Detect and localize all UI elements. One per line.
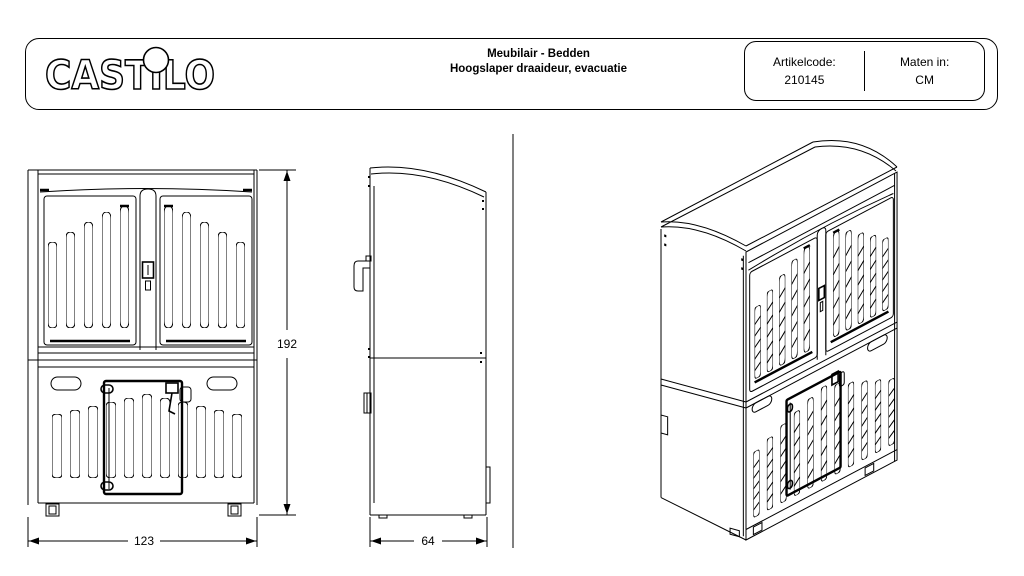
arrow-down-icon [284, 504, 291, 514]
slat [861, 380, 867, 461]
height-dim-label: 192 [277, 337, 297, 351]
slat [236, 242, 245, 328]
slat [200, 222, 209, 328]
slat [845, 229, 851, 331]
iso-side-latch [661, 415, 668, 435]
isometric-view [661, 140, 897, 540]
arrow-right-icon [476, 538, 486, 545]
slat [106, 402, 116, 478]
slat [753, 449, 759, 518]
door-lock-keyhole [146, 281, 151, 290]
front-rail-marks [40, 190, 252, 341]
slat [88, 406, 98, 478]
slat [164, 206, 173, 328]
upper-door-left [44, 196, 136, 345]
width-dim-label: 123 [134, 534, 154, 548]
slat [120, 206, 129, 328]
slat [882, 237, 888, 312]
slat [84, 222, 93, 328]
dimension-depth: 64 [370, 517, 487, 548]
arrow-right-icon [246, 538, 256, 545]
slat [70, 410, 80, 478]
side-view: 64 [354, 167, 490, 548]
slat [755, 304, 761, 379]
slat [48, 242, 57, 328]
drawing-sheet: CASTILO Meubilair - Bedden Hoogslaper dr… [0, 0, 1024, 576]
slat [232, 414, 242, 478]
hand-hole-left [51, 377, 81, 390]
side-outline [370, 167, 486, 515]
side-foot [379, 515, 387, 518]
slat [794, 409, 800, 496]
caster-wheel [49, 506, 56, 514]
slat [218, 232, 227, 328]
iso-swing-door [787, 371, 841, 496]
slat [214, 410, 224, 478]
slat [52, 414, 62, 478]
depth-dim-label: 64 [421, 534, 435, 548]
front-lower-slats [52, 394, 242, 478]
arrow-up-icon [284, 171, 291, 181]
iso-side-panel [661, 229, 746, 540]
swing-door-latch [166, 383, 178, 393]
iso-lock-keyhole [820, 301, 822, 311]
slat [848, 381, 854, 468]
arrow-left-icon [371, 538, 381, 545]
screw-dots [368, 176, 484, 363]
hand-hole-right [207, 377, 237, 390]
slat [142, 394, 152, 478]
slat [804, 245, 810, 353]
slat [833, 230, 839, 338]
slat [858, 232, 864, 325]
iso-door-lock [819, 286, 825, 301]
slat [791, 258, 797, 360]
slat [767, 289, 773, 373]
slat [779, 273, 785, 366]
side-handle [354, 261, 370, 291]
slat [102, 212, 111, 328]
slat [182, 212, 191, 328]
slat [875, 379, 881, 454]
slat [821, 385, 827, 483]
slat [196, 406, 206, 478]
slat [870, 234, 876, 318]
front-view: 192 123 [28, 170, 297, 548]
dimension-width: 123 [28, 517, 257, 548]
slat [807, 396, 813, 489]
slat [66, 232, 75, 328]
iso-upper-slats [755, 204, 889, 380]
front-upper-slats [48, 206, 245, 328]
side-foot [464, 515, 472, 518]
iso-front-outline [746, 172, 897, 540]
slat [888, 377, 894, 446]
latch-lever [169, 393, 175, 414]
iso-lower-slats [753, 349, 894, 518]
side-bracket [486, 467, 490, 503]
upper-door-right [160, 196, 252, 345]
slat [767, 436, 773, 511]
front-casters [46, 504, 241, 516]
caster-wheel [231, 506, 238, 514]
dimension-height: 192 [259, 170, 297, 515]
iso-front-face [746, 172, 897, 540]
technical-drawing: 192 123 [0, 0, 1024, 576]
arrow-left-icon [29, 538, 39, 545]
slat [124, 398, 134, 478]
